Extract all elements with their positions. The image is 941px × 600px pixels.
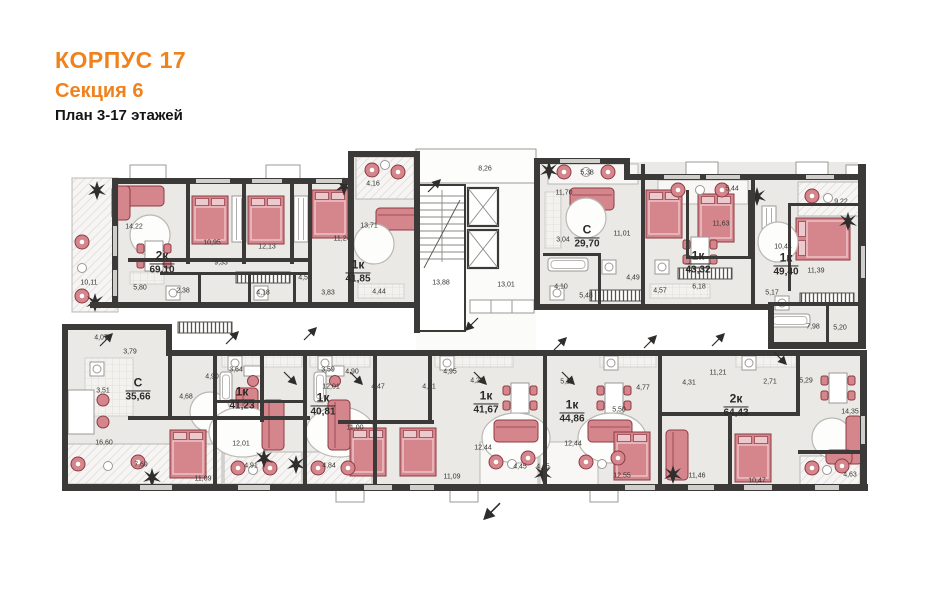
apartment-label[interactable]: 1к43,32 <box>685 249 710 276</box>
table-icon <box>78 264 87 273</box>
wall-protrusion <box>686 162 718 176</box>
washer-icon <box>90 362 104 376</box>
chair-icon <box>131 455 145 469</box>
chair-icon <box>75 235 89 249</box>
apartment-label[interactable]: С35,66 <box>125 376 150 403</box>
sofa-icon <box>262 400 284 450</box>
chair-icon <box>715 183 729 197</box>
apartment-area: 40,81 <box>310 406 335 419</box>
washer-icon <box>550 286 564 300</box>
apartment-area: 44,86 <box>559 413 584 426</box>
sofa-icon <box>494 420 538 442</box>
table-icon <box>508 460 517 469</box>
bed-icon <box>248 196 284 244</box>
chair-icon <box>805 461 819 475</box>
gallery-strip <box>416 149 536 183</box>
wall-protrusion <box>130 165 166 180</box>
chair-icon <box>557 165 571 179</box>
chair-icon <box>489 455 503 469</box>
washer-icon <box>318 356 332 370</box>
washer-icon <box>228 356 242 370</box>
apartment-area: 35,66 <box>125 391 150 404</box>
washer-icon <box>254 286 268 300</box>
chair-icon <box>835 459 849 473</box>
table-icon <box>381 161 390 170</box>
apartment-area: 41,23 <box>229 400 254 413</box>
bed-icon <box>192 196 228 244</box>
washer-icon <box>166 286 180 300</box>
table-icon <box>824 194 833 203</box>
apartment-type: 1к <box>473 389 498 404</box>
table-icon <box>696 186 705 195</box>
lobby-doors <box>470 300 534 313</box>
chair-icon <box>391 165 405 179</box>
wall-protrusion <box>796 162 828 176</box>
apartment-type: С <box>574 223 599 238</box>
floor-plan-page: КОРПУС 17 Секция 6 План 3-17 этажей <box>0 0 941 600</box>
apartment-label[interactable]: 2к69,10 <box>149 249 174 276</box>
wardrobe-icon <box>178 322 232 333</box>
apartment-label[interactable]: 1к40,81 <box>310 391 335 418</box>
apartment-type: 1к <box>310 391 335 406</box>
apartment-area: 41,67 <box>473 404 498 417</box>
chair-icon <box>671 183 685 197</box>
chair-icon <box>71 457 85 471</box>
apartment-area: 41,85 <box>345 273 370 286</box>
apartment-label[interactable]: С29,70 <box>574 223 599 250</box>
table-icon <box>249 466 258 475</box>
washer-icon <box>655 260 669 274</box>
floor-plan-drawing <box>0 0 941 600</box>
bed-icon <box>735 434 771 482</box>
apartment-area: 43,32 <box>685 264 710 277</box>
chair-icon <box>521 451 535 465</box>
wardrobe-icon <box>294 196 308 242</box>
bed-icon <box>400 428 436 476</box>
washer-icon <box>602 260 616 274</box>
washer-icon <box>604 356 618 370</box>
bathtub-icon <box>548 258 588 271</box>
table-icon <box>598 460 607 469</box>
chair-icon <box>579 455 593 469</box>
apartment-area: 29,70 <box>574 238 599 251</box>
washer-icon <box>440 356 454 370</box>
chair-icon <box>341 461 355 475</box>
chair-icon <box>231 461 245 475</box>
bed-icon <box>698 194 734 242</box>
table-icon <box>823 466 832 475</box>
table-icon <box>104 462 113 471</box>
chair-icon <box>805 189 819 203</box>
washer-icon <box>742 356 756 370</box>
apartment-label[interactable]: 1к44,86 <box>559 398 584 425</box>
chair-icon <box>601 165 615 179</box>
bed-icon <box>312 190 348 238</box>
bathtub-icon <box>770 314 810 327</box>
apartment-type: 2к <box>723 392 748 407</box>
chair-icon <box>311 461 325 475</box>
apartment-label[interactable]: 1к41,23 <box>229 385 254 412</box>
chair-icon <box>365 163 379 177</box>
apartment-area: 69,10 <box>149 264 174 277</box>
apartment-label[interactable]: 1к49,40 <box>773 251 798 278</box>
apartment-type: 2к <box>149 249 174 264</box>
apartment-type: 1к <box>773 251 798 266</box>
apartment-type: 1к <box>345 258 370 273</box>
apartment-type: 1к <box>229 385 254 400</box>
apartment-label[interactable]: 1к41,85 <box>345 258 370 285</box>
table-icon <box>582 168 591 177</box>
bed-icon <box>170 430 206 478</box>
apartment-area: 49,40 <box>773 266 798 279</box>
wall-protrusion <box>266 165 300 180</box>
apartment-type: С <box>125 376 150 391</box>
apartment-type: 1к <box>559 398 584 413</box>
apartment-type: 1к <box>685 249 710 264</box>
chair-icon <box>611 451 625 465</box>
apartment-label[interactable]: 1к41,67 <box>473 389 498 416</box>
apartment-area: 64,43 <box>723 407 748 420</box>
chair-icon <box>75 289 89 303</box>
apartment-label[interactable]: 2к64,43 <box>723 392 748 419</box>
